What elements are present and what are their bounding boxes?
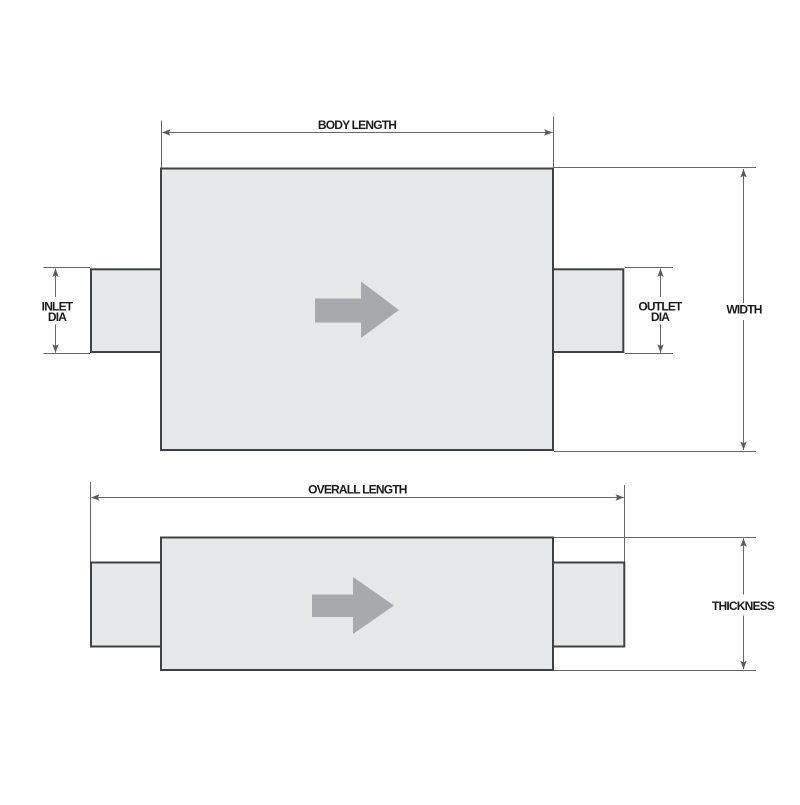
svg-text:WIDTH: WIDTH — [726, 303, 761, 317]
svg-text:OVERALL LENGTH: OVERALL LENGTH — [308, 482, 407, 496]
svg-text:DIA: DIA — [48, 310, 67, 324]
svg-text:DIA: DIA — [651, 310, 670, 324]
svg-text:THICKNESS: THICKNESS — [712, 599, 775, 613]
svg-text:BODY LENGTH: BODY LENGTH — [318, 118, 396, 132]
